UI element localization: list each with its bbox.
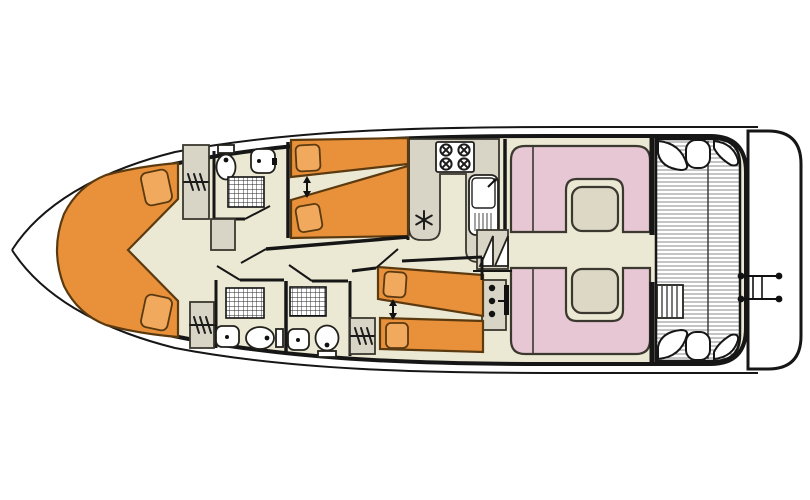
port-bed-2-pillow	[386, 323, 408, 348]
wardrobe-cabin-port	[350, 318, 375, 354]
instrument-dial-3	[489, 311, 495, 317]
corner-seat-bottom-mid	[686, 332, 710, 360]
aft-deck	[656, 139, 740, 361]
shower-port-1	[226, 288, 264, 318]
instrument-dial-2	[489, 298, 495, 304]
galley-sink	[469, 175, 498, 235]
toilet-port-1	[246, 327, 283, 349]
v-berth-pillow-top	[140, 169, 173, 207]
washbasin-forward	[251, 149, 277, 173]
instrument-dial-1	[489, 285, 495, 291]
v-berth-pillow-bottom	[140, 294, 173, 332]
wardrobe-aft-port	[190, 302, 214, 348]
deck-planking	[656, 139, 740, 361]
cupboard-corridor	[211, 219, 235, 250]
saloon-table-bottom	[572, 269, 618, 313]
hob	[436, 142, 474, 172]
shower-port-2	[290, 287, 326, 316]
shower-forward	[228, 177, 264, 207]
corner-seat-top-mid	[686, 140, 710, 168]
deck-steps	[657, 285, 683, 318]
starboard-bed-1-pillow	[295, 144, 320, 171]
toilet-forward	[217, 145, 236, 180]
floor-plan-canvas	[0, 0, 810, 500]
washbasin-port-1	[216, 326, 239, 347]
companionway-stairs	[473, 230, 512, 271]
toilet-port-2	[316, 326, 339, 358]
washbasin-port-2	[288, 329, 309, 350]
wardrobe-forward	[183, 145, 209, 219]
steering-wheel	[504, 285, 509, 315]
helm-station	[482, 280, 509, 330]
saloon-table-top	[572, 187, 618, 231]
boat-floor-plan	[0, 0, 810, 500]
port-bed-1-pillow	[383, 271, 407, 297]
starboard-bed-2-pillow	[295, 203, 323, 233]
swim-platform	[748, 131, 801, 369]
